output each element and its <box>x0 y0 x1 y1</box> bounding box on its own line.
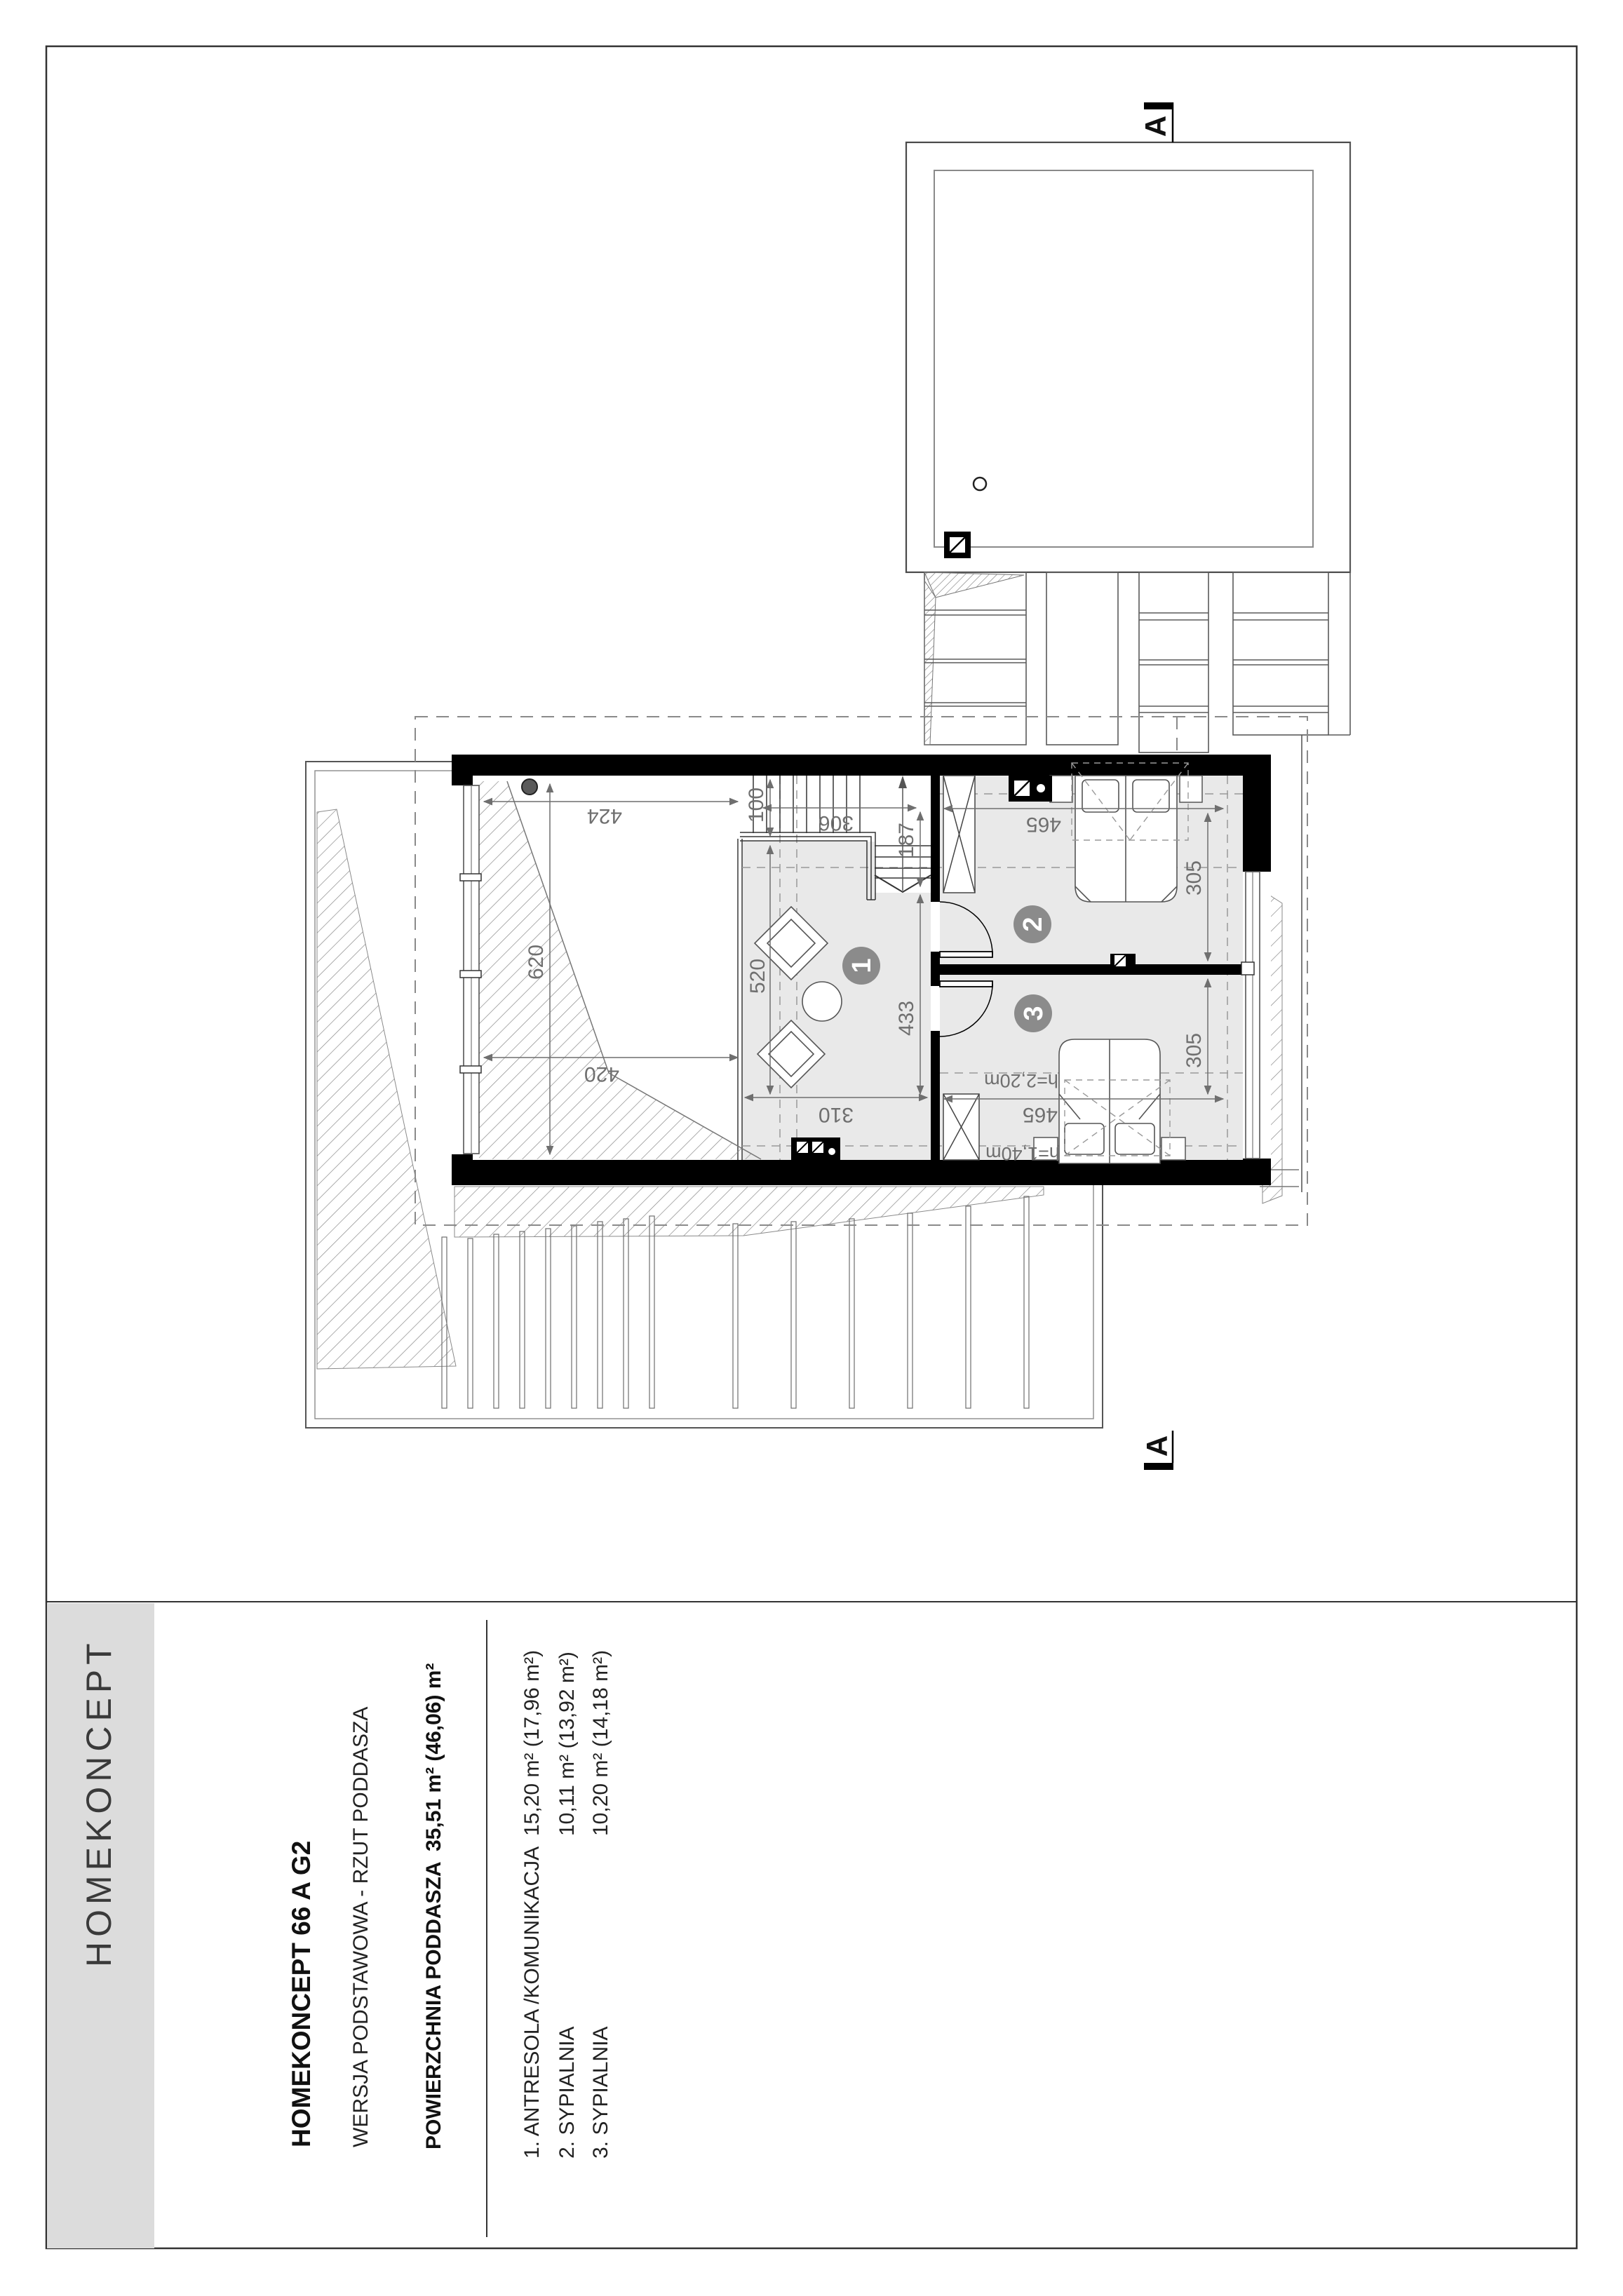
vent-marker-top-wall <box>1009 776 1052 802</box>
room-list: 1. ANTRESOLA /KOMUNIKACJA 15,20 m² (17,9… <box>520 1650 612 2159</box>
section-label-top: A <box>1139 116 1172 137</box>
area-value: 35,51 m² (46,06) m² <box>422 1663 445 1851</box>
roof-vent-marker <box>944 532 971 558</box>
svg-text:1: 1 <box>847 958 877 973</box>
room-list-item-area: 15,20 m² (17,96 m²) <box>520 1650 544 1836</box>
dim-hall-height: 433 <box>895 1001 918 1036</box>
drawing-canvas: A A <box>0 0 1623 2296</box>
dim-room2-height: 305 <box>1183 860 1206 896</box>
chimney-block <box>791 1137 840 1161</box>
garage-roof-outline <box>906 142 1350 572</box>
title-block: HOMEKONCEPT HOMEKONCEPT 66 A G2 WERSJA P… <box>47 1603 612 2248</box>
dim-h140: h=1,40m <box>985 1143 1060 1164</box>
dim-stair-width: 306 <box>819 811 854 835</box>
roof-point-marker <box>522 779 537 795</box>
dim-hall-width: 310 <box>819 1103 854 1126</box>
svg-text:2: 2 <box>1018 917 1048 931</box>
dim-void-height: 620 <box>525 945 548 980</box>
dim-floor-width: 520 <box>746 959 769 994</box>
roof-drain-circle <box>974 478 986 490</box>
gable-window-left <box>460 785 481 1154</box>
svg-text:3: 3 <box>1019 1006 1049 1020</box>
project-title: HOMEKONCEPT 66 A G2 <box>287 1841 316 2147</box>
nightstand <box>1180 776 1202 802</box>
dim-room3-width: 465 <box>1023 1103 1058 1126</box>
coffee-table <box>802 982 842 1021</box>
attic-plan: 1 2 3 424 420 <box>452 755 1271 1185</box>
dim-h220: h=2,20m <box>984 1070 1058 1091</box>
room-list-item-area: 10,20 m² (14,18 m²) <box>589 1650 612 1836</box>
nightstand <box>1050 776 1072 802</box>
room-list-item-name: 2. SYPIALNIA <box>555 2027 579 2159</box>
dim-stair-depth: 187 <box>895 823 918 858</box>
room-list-item-name: 1. ANTRESOLA /KOMUNIKACJA <box>520 1846 544 2159</box>
plan-sheet: A A <box>0 0 1623 2296</box>
wardrobe-room3 <box>943 1094 979 1160</box>
room-list-item-area: 10,11 m² (13,92 m²) <box>555 1652 579 1836</box>
area-label: POWIERZCHNIA PODDASZA <box>422 1861 445 2149</box>
vent-marker-mid-wall <box>1110 954 1136 969</box>
room-badge-3: 3 <box>1014 994 1052 1032</box>
dim-top-width: 424 <box>587 804 622 828</box>
brand-logo: HOMEKONCEPT <box>79 1638 119 1967</box>
dim-bottom-width: 420 <box>584 1062 619 1086</box>
room-badge-1: 1 <box>842 947 880 985</box>
section-marker-bottom: A <box>1140 1431 1173 1470</box>
room-badge-2: 2 <box>1013 905 1051 943</box>
section-marker-top: A <box>1139 102 1173 142</box>
nightstand <box>1161 1137 1185 1160</box>
dim-landing: 100 <box>745 788 768 823</box>
bed-room2 <box>1075 776 1177 902</box>
dim-room2-width: 465 <box>1026 813 1061 836</box>
bed-room3 <box>1059 1039 1160 1163</box>
section-label-bottom: A <box>1140 1436 1173 1457</box>
version-line: WERSJA PODSTAWOWA - RZUT PODDASZA <box>349 1707 372 2147</box>
dim-room3-height: 305 <box>1183 1033 1206 1068</box>
wardrobe-room2 <box>943 776 975 893</box>
room-list-item-name: 3. SYPIALNIA <box>589 2027 612 2159</box>
